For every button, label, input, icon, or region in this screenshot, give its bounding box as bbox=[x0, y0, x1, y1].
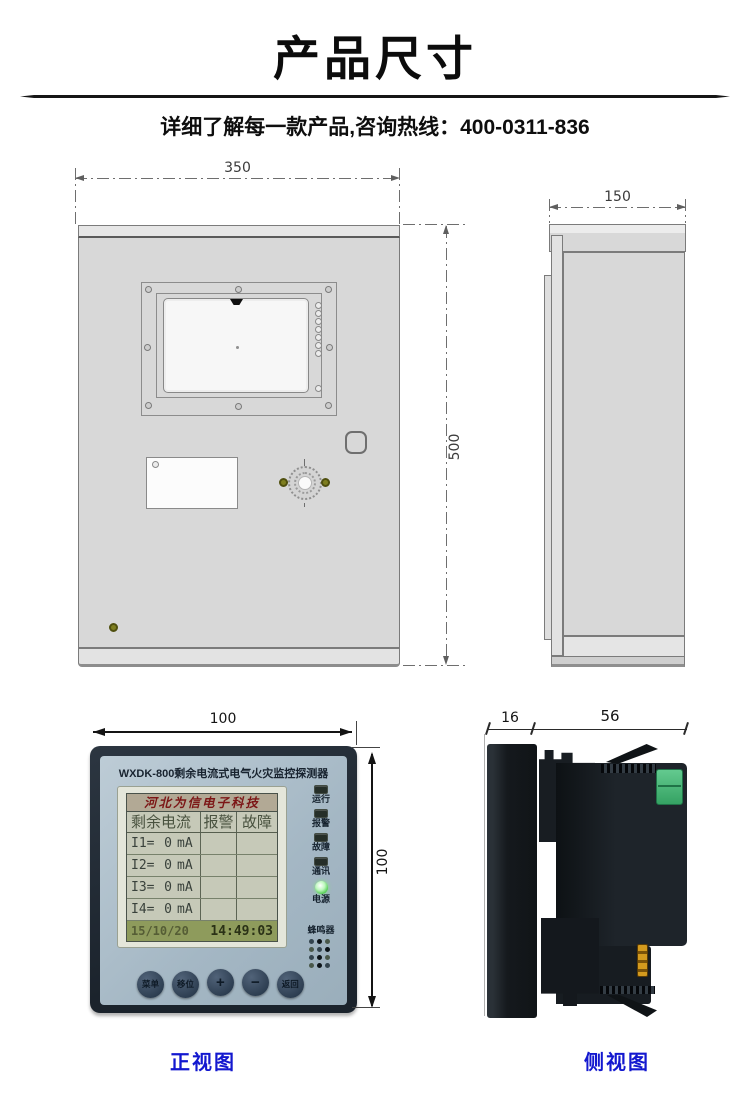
vent-hole bbox=[315, 318, 322, 325]
buzzer-hole bbox=[325, 955, 330, 960]
fault-cell bbox=[236, 855, 277, 876]
lcd-time: 14:49:03 bbox=[210, 924, 273, 939]
module-clip-spring-top bbox=[606, 744, 658, 764]
cabinet-base bbox=[78, 648, 400, 667]
vent-hole bbox=[315, 302, 322, 309]
terminal-block-green bbox=[656, 769, 683, 805]
side-door-panel bbox=[551, 235, 563, 656]
screen-center-dot bbox=[236, 346, 239, 349]
module-front-bezel bbox=[487, 744, 537, 1018]
module-depth-dimension-line bbox=[488, 729, 687, 730]
screw-icon bbox=[325, 402, 332, 409]
cabinet-height-dimension-label: 500 bbox=[448, 430, 462, 464]
channel-value: 0 bbox=[159, 899, 177, 921]
lcd-col-residual-current: 剩余电流 bbox=[127, 812, 200, 832]
hotline-subtitle: 详细了解每一款产品,咨询热线：400-0311-836 bbox=[0, 111, 750, 141]
channel-value: 0 bbox=[159, 877, 177, 899]
dim-extension-line bbox=[685, 199, 686, 223]
door-lock-center bbox=[298, 476, 312, 490]
lcd-status-bar: 15/10/20 14:49:03 bbox=[127, 921, 277, 941]
detector-height-dimension-label: 100 bbox=[376, 845, 390, 879]
screw-icon bbox=[325, 286, 332, 293]
channel-unit: mA bbox=[177, 858, 193, 873]
vent-hole bbox=[315, 385, 322, 392]
label-plate-hole bbox=[152, 461, 159, 468]
shift-button: 移位 bbox=[172, 971, 199, 998]
buzzer-hole bbox=[309, 939, 314, 944]
vent-hole bbox=[315, 334, 322, 341]
dim-extension-line bbox=[399, 168, 400, 224]
divider-line bbox=[20, 95, 730, 98]
lcd-col-alarm: 报警 bbox=[200, 812, 236, 832]
dim-extension-line bbox=[352, 747, 380, 748]
alarm-cell bbox=[200, 833, 236, 854]
buzzer-hole bbox=[309, 955, 314, 960]
side-cap bbox=[549, 233, 686, 252]
dim-extension-line bbox=[356, 721, 357, 745]
dim-arrow-down-icon bbox=[443, 656, 449, 665]
channel-value: 0 bbox=[159, 833, 177, 855]
module-bottom-clip bbox=[541, 918, 599, 1006]
lcd-date: 15/10/20 bbox=[131, 924, 189, 938]
vent-hole bbox=[315, 326, 322, 333]
front-view-caption: 正视图 bbox=[158, 1046, 248, 1075]
buzzer-hole bbox=[325, 939, 330, 944]
dim-arrow-left-icon bbox=[75, 175, 84, 181]
dim-extension-line bbox=[403, 224, 469, 225]
page-title: 产品尺寸 bbox=[0, 20, 750, 89]
dim-arrow-up-icon bbox=[443, 225, 449, 234]
alarm-cell bbox=[200, 899, 236, 920]
product-dimensions-page: 产品尺寸 详细了解每一款产品,咨询热线：400-0311-836 350 500 bbox=[0, 0, 750, 1097]
side-view-caption: 侧视图 bbox=[572, 1046, 662, 1075]
terminal-pins-gold bbox=[637, 944, 648, 977]
screw-icon bbox=[326, 344, 333, 351]
indicator-led-column: 运行 报警 故障 通讯 电源 bbox=[303, 785, 339, 908]
run-led-icon bbox=[314, 785, 328, 794]
buzzer-hole bbox=[317, 939, 322, 944]
vent-hole bbox=[315, 350, 322, 357]
cabinet-width-dimension-line bbox=[75, 178, 400, 179]
terminal-block-slot bbox=[658, 785, 681, 787]
channel-id: I3= bbox=[131, 877, 159, 899]
dim-extension-line bbox=[75, 168, 76, 224]
buzzer-hole bbox=[309, 947, 314, 952]
buzzer-hole bbox=[325, 963, 330, 968]
lcd-row-i4: I4=0mA bbox=[127, 899, 277, 921]
screw-icon bbox=[235, 403, 242, 410]
fault-cell bbox=[236, 833, 277, 854]
lcd-table-header: 剩余电流 报警 故障 bbox=[127, 812, 277, 833]
screw-icon bbox=[235, 286, 242, 293]
minus-button: − bbox=[242, 969, 269, 996]
alarm-led-label: 报警 bbox=[303, 819, 339, 829]
alarm-cell bbox=[200, 855, 236, 876]
buzzer-hole bbox=[309, 963, 314, 968]
lock-led-right bbox=[321, 478, 330, 487]
comm-led-icon bbox=[314, 857, 328, 866]
side-body bbox=[563, 252, 685, 636]
menu-button: 菜单 bbox=[137, 971, 164, 998]
fault-cell bbox=[236, 899, 277, 920]
dim-arrow-left-icon bbox=[93, 728, 105, 736]
module-front-depth-label: 16 bbox=[486, 711, 534, 725]
screw-icon bbox=[144, 344, 151, 351]
module-vent-comb-bottom bbox=[600, 986, 655, 994]
side-base-upper bbox=[563, 636, 685, 657]
lcd-brand-text: 河北为信电子科技 bbox=[127, 794, 277, 812]
dim-arrow-down-icon bbox=[368, 996, 376, 1008]
dim-arrow-up-icon bbox=[368, 752, 376, 764]
channel-id: I4= bbox=[131, 899, 159, 921]
dim-arrow-right-icon bbox=[340, 728, 352, 736]
fault-led-icon bbox=[314, 833, 328, 842]
module-body-depth-label: 56 bbox=[534, 709, 686, 724]
lcd-row-i1: I1=0mA bbox=[127, 833, 277, 855]
cabinet-status-led bbox=[109, 623, 118, 632]
buzzer-hole bbox=[325, 947, 330, 952]
detector-width-dimension-label: 100 bbox=[93, 712, 353, 726]
buzzer-hole bbox=[317, 955, 322, 960]
buzzer-holes bbox=[307, 937, 333, 969]
vent-hole bbox=[315, 310, 322, 317]
detector-height-dimension-line bbox=[371, 754, 373, 1006]
cabinet-width-dimension-label: 350 bbox=[75, 161, 400, 175]
channel-id: I1= bbox=[131, 833, 159, 855]
power-led-label: 电源 bbox=[303, 895, 339, 905]
button-row: 菜单 移位 + − 返回 bbox=[137, 969, 307, 998]
lcd-row-i3: I3=0mA bbox=[127, 877, 277, 899]
screw-icon bbox=[145, 402, 152, 409]
alarm-led-icon bbox=[314, 809, 328, 818]
fault-led-label: 故障 bbox=[303, 843, 339, 853]
vent-hole bbox=[315, 342, 322, 349]
cabinet-depth-dimension-label: 150 bbox=[549, 190, 686, 204]
channel-id: I2= bbox=[131, 855, 159, 877]
channel-value: 0 bbox=[159, 855, 177, 877]
power-led-icon bbox=[315, 881, 328, 894]
detector-model-title: WXDK-800剩余电流式电气火灾监控探测器 bbox=[103, 765, 344, 781]
fault-cell bbox=[236, 877, 277, 898]
lcd-col-fault: 故障 bbox=[236, 812, 277, 832]
lock-led-left bbox=[279, 478, 288, 487]
run-led-label: 运行 bbox=[303, 795, 339, 805]
lcd-row-i2: I2=0mA bbox=[127, 855, 277, 877]
key-slot bbox=[345, 431, 367, 454]
back-button: 返回 bbox=[277, 971, 304, 998]
buzzer-label: 蜂鸣器 bbox=[303, 926, 339, 936]
screw-icon bbox=[145, 286, 152, 293]
comm-led-label: 通讯 bbox=[303, 867, 339, 877]
side-hinge bbox=[544, 275, 552, 640]
dim-extension-line bbox=[484, 734, 485, 1016]
channel-unit: mA bbox=[177, 880, 193, 895]
lcd-screen: 河北为信电子科技 剩余电流 报警 故障 I1=0mA I2=0mA I3=0mA… bbox=[126, 793, 278, 942]
plus-button: + bbox=[207, 969, 234, 996]
side-base-lower bbox=[551, 656, 685, 667]
dim-extension-line bbox=[403, 665, 469, 666]
buzzer-hole bbox=[317, 963, 322, 968]
dim-arrow-left-icon bbox=[549, 204, 558, 210]
cabinet-depth-dimension-line bbox=[549, 207, 686, 208]
dim-extension-line bbox=[549, 199, 550, 223]
alarm-cell bbox=[200, 877, 236, 898]
channel-unit: mA bbox=[177, 836, 193, 851]
cabinet-top-cap bbox=[78, 225, 400, 238]
buzzer-hole bbox=[317, 947, 322, 952]
channel-unit: mA bbox=[177, 902, 193, 917]
detector-width-dimension-line bbox=[93, 731, 352, 733]
label-plate bbox=[146, 457, 238, 509]
module-vent-comb-top bbox=[601, 764, 656, 773]
